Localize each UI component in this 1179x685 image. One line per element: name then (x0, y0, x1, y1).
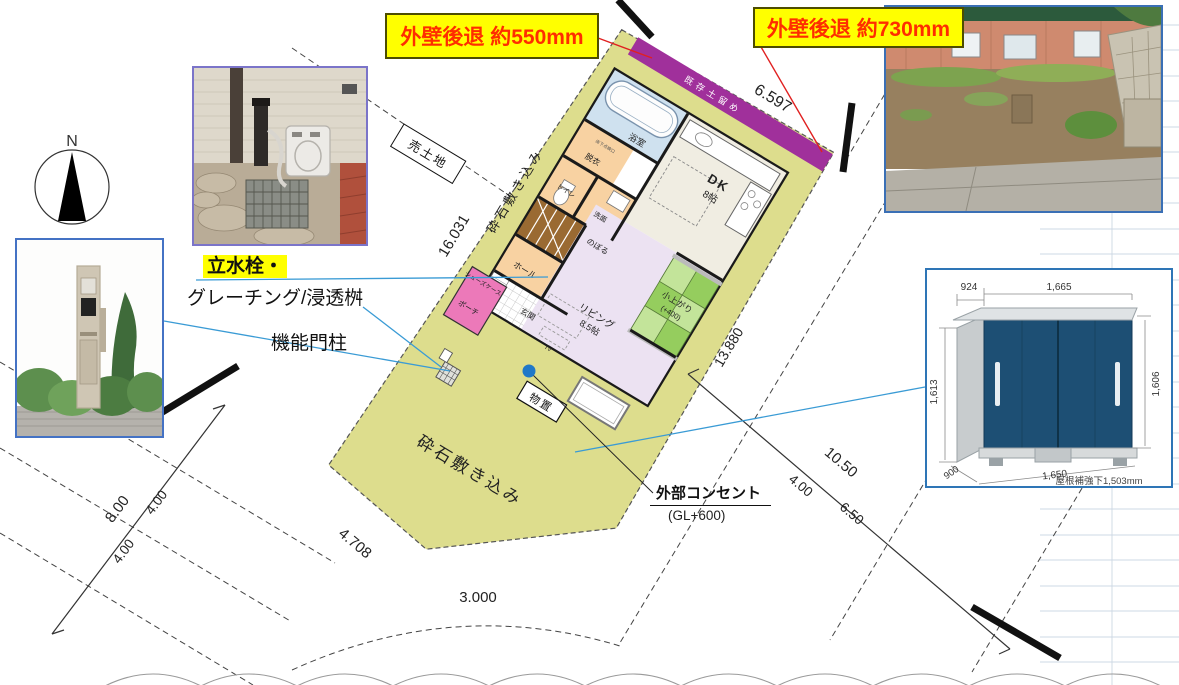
outlet-label: 外部コンセント (650, 482, 771, 506)
svg-text:4.708: 4.708 (335, 525, 375, 562)
shed-dim-hleft: 1,613 (929, 379, 940, 404)
svg-text:4.00: 4.00 (786, 471, 816, 499)
outlet-gl-label: (GL+600) (668, 508, 771, 523)
svg-text:8.00: 8.00 (102, 493, 133, 527)
for-sale-label: 売土地 (391, 124, 466, 183)
post-side-bar (100, 308, 106, 352)
grating-label: グレーチング/浸透桝 (187, 288, 363, 309)
standpipe (254, 104, 268, 166)
gate-post-note: 機能門柱 (271, 328, 347, 355)
setback-callout-left: 外壁後退 約550mm (385, 13, 599, 59)
window (1004, 35, 1036, 59)
window (1074, 31, 1100, 57)
standpipe-note: 立水栓・ (203, 251, 287, 278)
svg-text:4.00: 4.00 (143, 487, 171, 517)
svg-text:3.000: 3.000 (459, 589, 497, 606)
shed-roof (953, 308, 1137, 320)
mail-slot (80, 332, 97, 336)
svg-text:4.00: 4.00 (110, 536, 138, 566)
shed-note: 屋根補強下1,503mm (1055, 475, 1142, 486)
setback-right-text: 外壁後退 約730mm (767, 13, 950, 43)
setback-callout-right: 外壁後退 約730mm (753, 7, 964, 48)
gate-post-label: 機能門柱 (271, 333, 347, 354)
vent (342, 84, 357, 94)
downpipe (230, 68, 243, 164)
shed-dim-side: 924 (961, 282, 978, 293)
dim-left: 16.031 (435, 212, 473, 260)
nameplate (81, 278, 96, 294)
photo-standpipe-grating (192, 66, 368, 246)
grating-note: グレーチング/浸透桝 (187, 283, 363, 310)
standpipe-cap (252, 98, 270, 106)
shed-product-image: 924 1,665 1,613 1,606 900 1,650 屋根補強下1,5… (925, 268, 1173, 488)
cloud-border (105, 674, 1161, 685)
outlet-point (523, 365, 536, 378)
shed-side-panel (957, 316, 984, 462)
wall-end-block (1124, 99, 1161, 147)
door-handle-right (1115, 362, 1120, 406)
intercom (81, 298, 96, 316)
standpipe-label: 立水栓・ (203, 255, 287, 278)
door-handle-left (995, 362, 1000, 406)
shed-dim-hright: 1,606 (1151, 371, 1162, 396)
outlet-note: 外部コンセント (GL+600) (650, 482, 771, 523)
stump (1012, 95, 1032, 123)
north-arrow: N (35, 133, 109, 224)
photo-gate-post (15, 238, 164, 438)
svg-text:N: N (66, 133, 78, 150)
mail-box (80, 340, 97, 384)
setback-left-text: 外壁後退 約550mm (400, 21, 583, 51)
shed-dim-front: 1,665 (1046, 282, 1071, 293)
svg-text:10.50: 10.50 (821, 444, 861, 481)
shed-step (1035, 448, 1071, 462)
